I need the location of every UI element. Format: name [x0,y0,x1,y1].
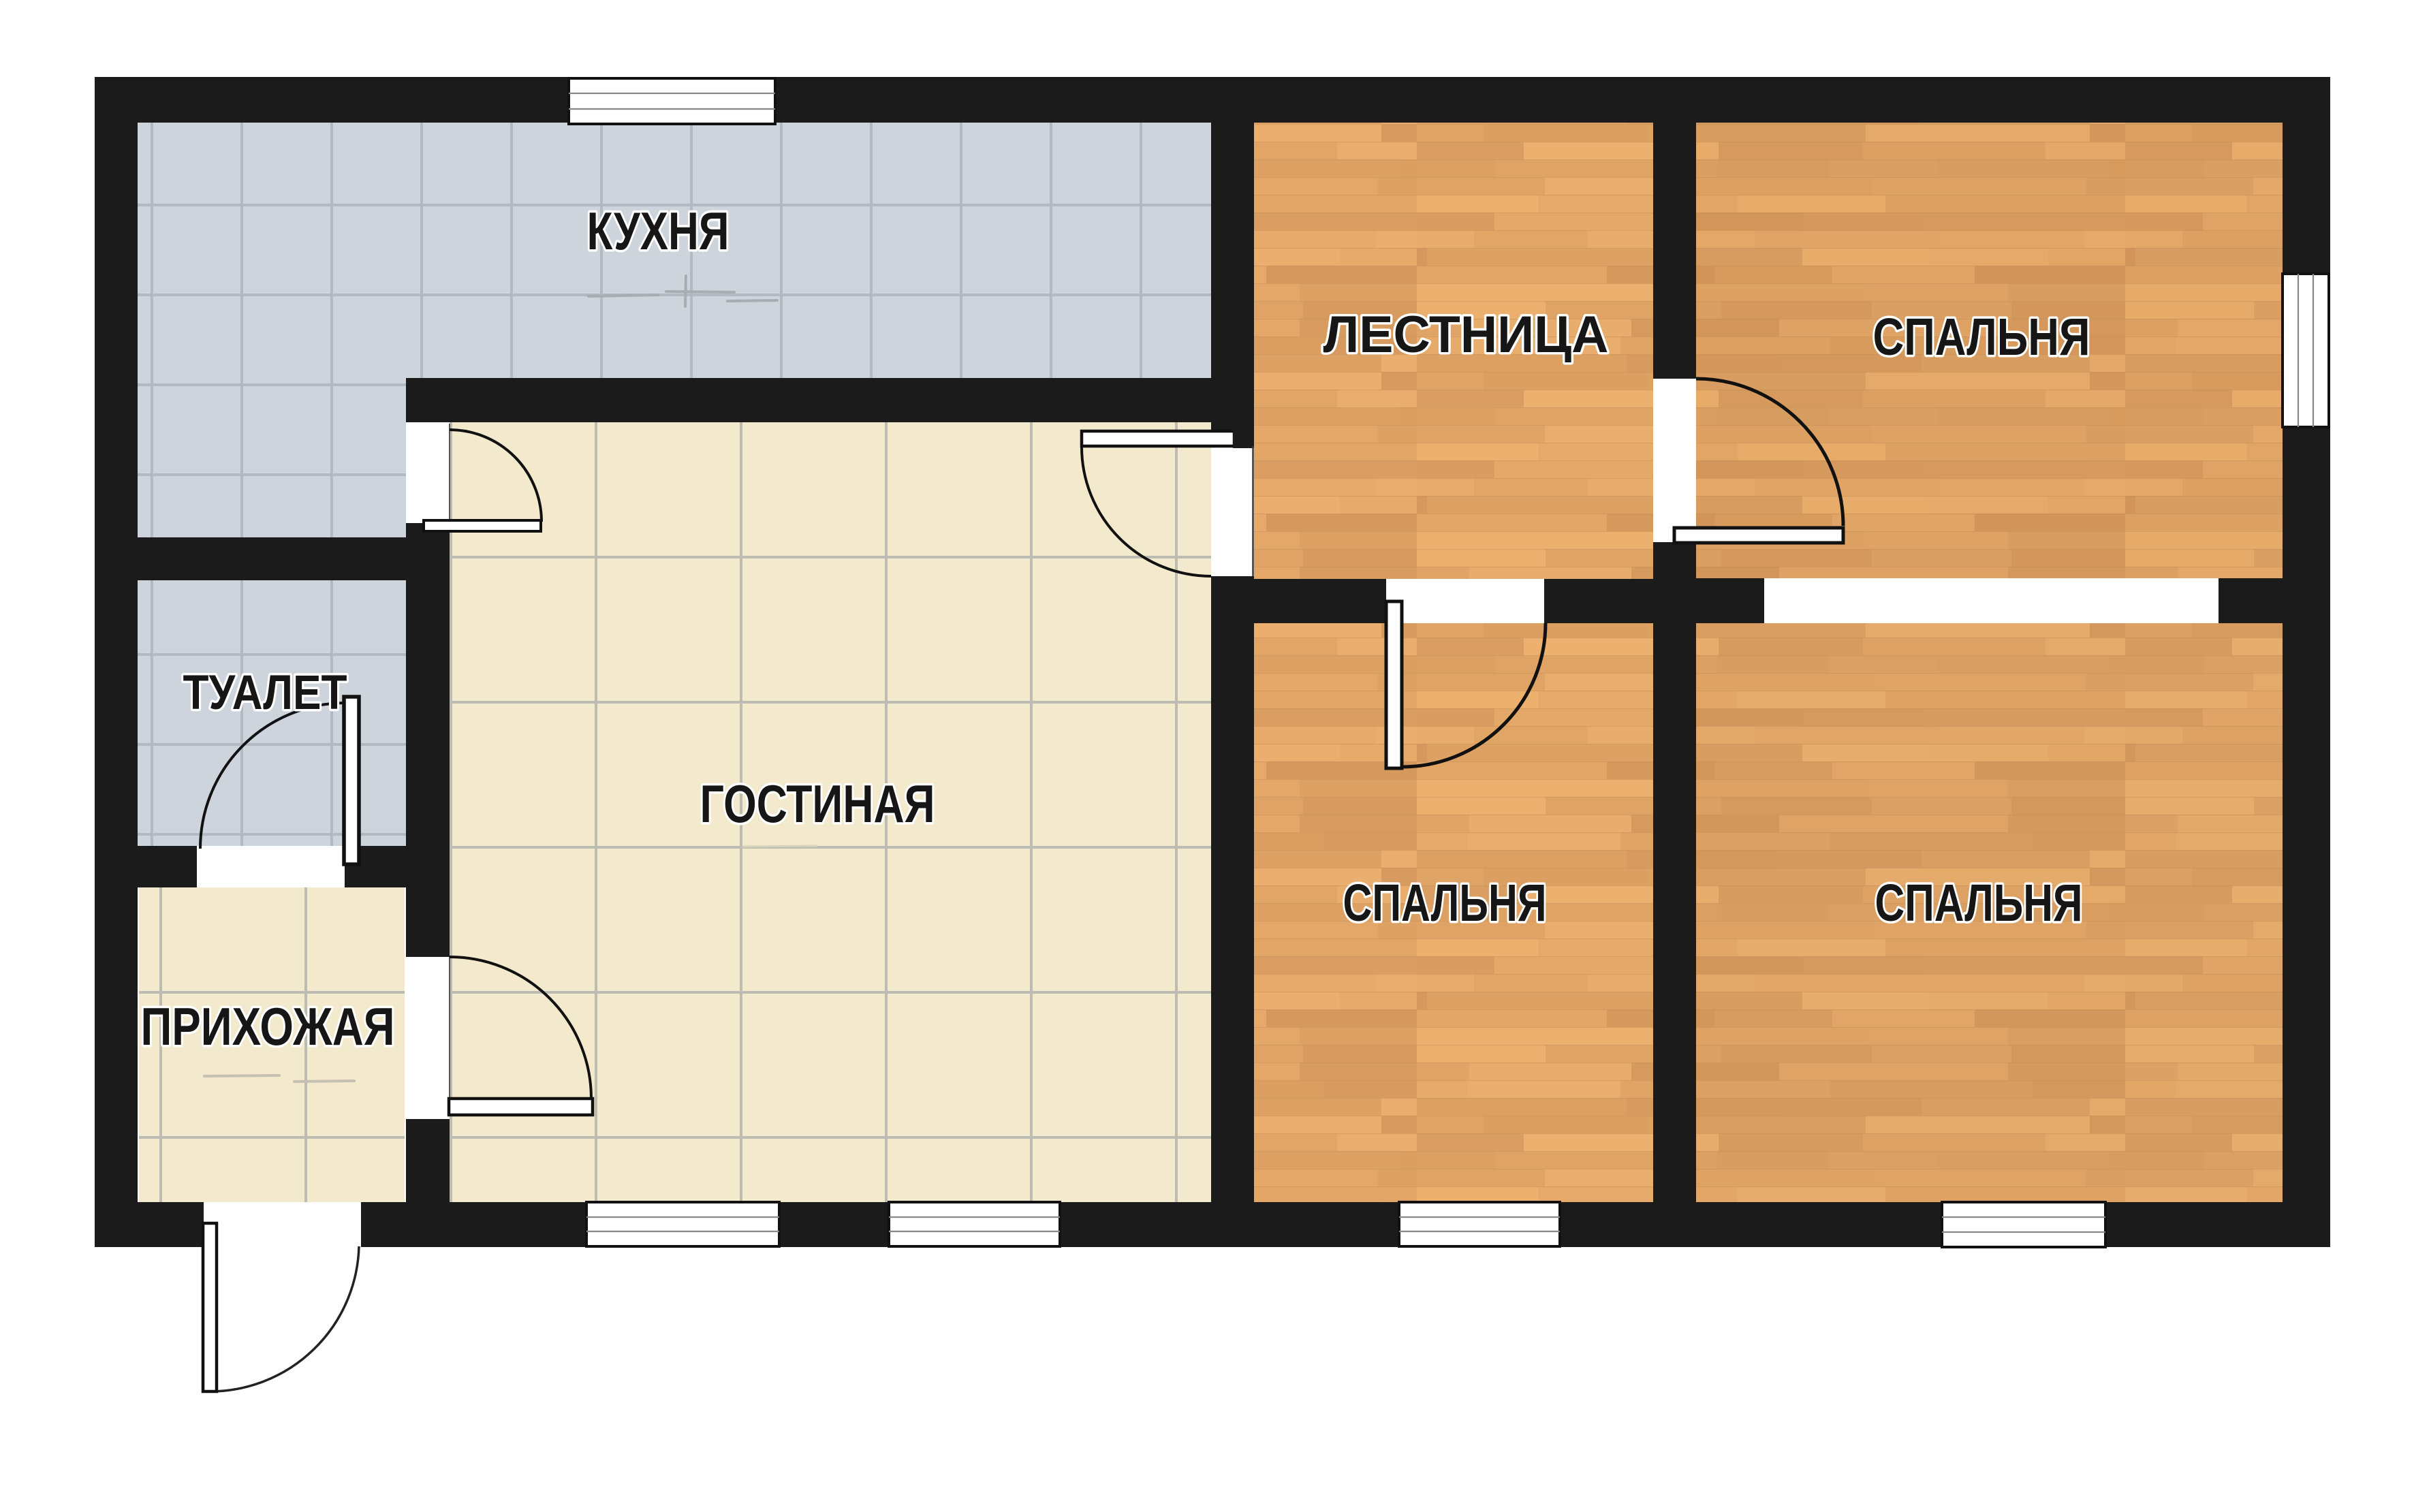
svg-text:ГОСТИНАЯ: ГОСТИНАЯ [700,774,935,834]
svg-text:КУХНЯ: КУХНЯ [587,201,730,261]
svg-text:ЛЕСТНИЦА: ЛЕСТНИЦА [1323,306,1609,364]
svg-text:СПАЛЬНЯ: СПАЛЬНЯ [1343,874,1547,932]
svg-text:ПРИХОЖАЯ: ПРИХОЖАЯ [141,996,395,1056]
svg-text:СПАЛЬНЯ: СПАЛЬНЯ [1875,874,2083,932]
svg-text:ТУАЛЕТ: ТУАЛЕТ [183,666,347,720]
svg-text:СПАЛЬНЯ: СПАЛЬНЯ [1873,308,2090,366]
